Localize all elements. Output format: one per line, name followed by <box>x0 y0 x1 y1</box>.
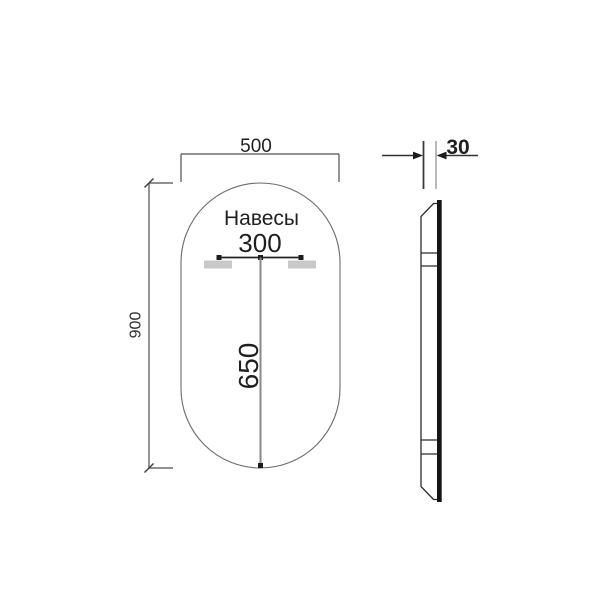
dimension-hanger-to-bottom-label: 650 <box>233 343 264 390</box>
dimension-width: 500 <box>181 136 339 182</box>
front-view: 500 900 Навесы 300 <box>128 136 341 473</box>
dimension-hanger-to-bottom: 650 <box>233 258 264 469</box>
arrow-right-icon <box>413 152 423 160</box>
dimension-height: 900 <box>128 179 174 473</box>
mirror-side-glass-edge <box>437 200 442 502</box>
hanger-left <box>204 261 232 269</box>
mirror-side-backpanel-outline <box>421 204 437 500</box>
dimension-marker-bottom <box>258 463 263 468</box>
side-view: 30 <box>382 136 478 502</box>
arrow-left-icon <box>437 152 447 160</box>
side-bracket-top-lines <box>421 253 437 266</box>
dimension-height-label: 900 <box>128 312 145 339</box>
hangers-annotation-label: Навесы <box>224 207 299 230</box>
dimension-marker-right <box>299 255 304 260</box>
dimension-thickness-label: 30 <box>446 136 469 159</box>
dimension-width-label: 500 <box>240 136 272 157</box>
dimension-width-lines <box>181 154 339 182</box>
hanger-right <box>288 261 316 269</box>
dimension-height-lines <box>149 183 173 468</box>
dimension-hanger-spacing: 300 <box>217 228 304 260</box>
dimension-hanger-spacing-label: 300 <box>238 228 281 258</box>
technical-drawing-page: 500 900 Навесы 300 <box>0 0 600 600</box>
side-bracket-bottom-lines <box>421 440 437 454</box>
mirror-dimension-drawing: 500 900 Навесы 300 <box>0 0 600 600</box>
dimension-thickness: 30 <box>382 136 478 189</box>
dimension-marker-left <box>217 255 222 260</box>
